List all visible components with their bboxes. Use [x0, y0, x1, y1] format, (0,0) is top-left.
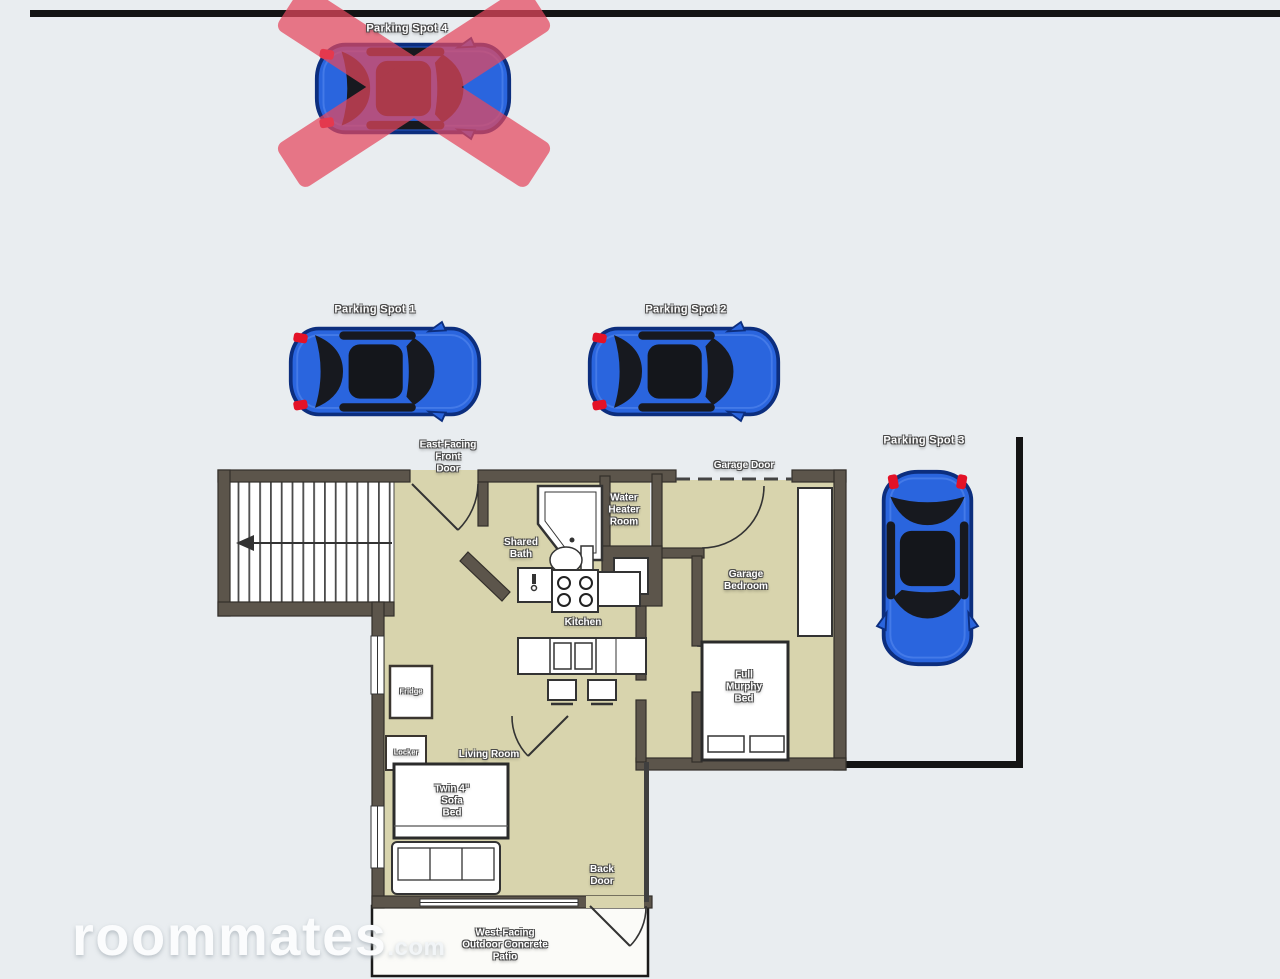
floorplan-scene: Parking Spot 4 Parking Spot 1 Parking Sp…: [0, 0, 1280, 979]
roommates-watermark: roommates.com: [72, 903, 445, 968]
car-top-icon-spot3: [877, 472, 978, 664]
back-door-opening: [586, 896, 644, 908]
couch: [392, 842, 500, 894]
watermark-brand: roommates: [72, 904, 387, 967]
bath-sink: [518, 568, 552, 602]
murphy-bed-box: [702, 642, 788, 760]
staircase: [230, 482, 394, 602]
corridor-edge-line: [644, 762, 649, 902]
top-boundary-line: [30, 10, 1280, 17]
car-top-icon-spot1: [291, 322, 480, 421]
garage-closet: [798, 488, 832, 636]
watermark-tld: .com: [387, 934, 445, 961]
kitchen-counter: [598, 572, 640, 606]
fridge-box: [390, 666, 432, 718]
sofa-bed-box: [394, 764, 508, 838]
stove: [552, 570, 598, 612]
kitchen-island: [518, 638, 646, 674]
floorplan-graphics: [0, 0, 1280, 979]
car-top-icon-spot2: [590, 322, 779, 421]
